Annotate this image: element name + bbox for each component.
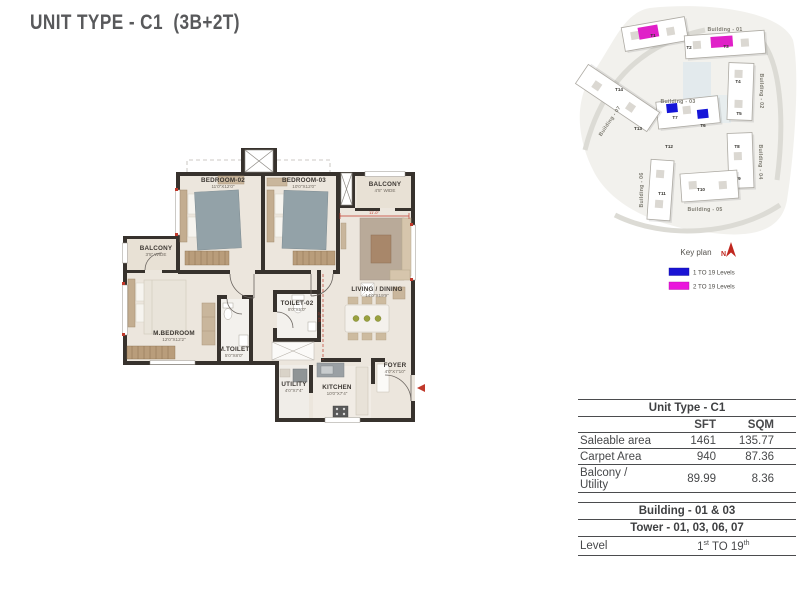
svg-text:12'0"X12'2": 12'0"X12'2": [162, 337, 186, 342]
building-row: Building - 01 & 03: [578, 503, 796, 519]
building-03-label: Building - 03: [660, 99, 695, 105]
label-balcony-left: BALCONY: [140, 245, 173, 252]
svg-text:10'0"X12'0": 10'0"X12'0": [292, 184, 316, 189]
stove-icon: [333, 406, 348, 417]
dim-living-width: 11'-0": [369, 210, 379, 215]
dining-set: [345, 297, 389, 340]
label-bedroom02: BEDROOM-02: [201, 177, 245, 184]
tower-t1: T1: [650, 33, 656, 38]
tower-t7: T7: [672, 115, 678, 120]
shaft-top: [245, 150, 273, 172]
tower-t4: T4: [735, 79, 741, 84]
tower-t2: T2: [686, 45, 692, 50]
table-row-balcony: Balcony / Utility 89.99 8.36: [578, 465, 796, 492]
building-05-label: Building - 05: [687, 207, 722, 213]
svg-text:4'0"X7'10": 4'0"X7'10": [385, 369, 406, 374]
tower-t14: T14: [615, 87, 623, 92]
label-utility: UTILITY: [281, 381, 307, 388]
level-value: 1st TO 19th: [651, 540, 796, 553]
page-title: UNIT TYPE - C1 (3B+2T): [30, 11, 240, 35]
svg-text:4'0"X7'4": 4'0"X7'4": [285, 388, 304, 393]
building-02-label: Building - 02: [758, 73, 764, 108]
table-row-saleable: Saleable area 1461 135.77: [578, 433, 796, 448]
label-toilet02: TOILET-02: [281, 300, 314, 307]
legend-swatch-blue: [669, 268, 689, 276]
label-balcony-top: BALCONY: [369, 181, 402, 188]
label-foyer: FOYER: [384, 362, 407, 369]
level-label: Level: [578, 540, 651, 553]
legend-label-magenta: 2 TO 19 Levels: [693, 284, 735, 291]
table-title: Unit Type - C1: [578, 400, 796, 416]
north-arrow-icon: [726, 242, 736, 257]
col-sqm: SQM: [716, 419, 796, 431]
label-master-bedroom: M.BEDROOM: [153, 330, 195, 337]
floor-plan: 11'-0" 12'-2" BEDROOM-02 11'0"X12'0" BED…: [90, 145, 450, 440]
tower-row: Tower - 01, 03, 06, 07: [578, 520, 796, 536]
key-plan-title: Key plan: [680, 248, 711, 257]
svg-text:8'0"X5'0": 8'0"X5'0": [288, 307, 307, 312]
label-living-dining: LIVING / DINING: [351, 286, 402, 293]
label-bedroom03: BEDROOM-03: [282, 177, 326, 184]
entrance-arrow-icon: [417, 384, 425, 392]
tower-t6: T6: [700, 123, 706, 128]
tower-t12: T12: [665, 144, 673, 149]
lobby-passage: [272, 342, 314, 360]
building-01-label: Building - 01: [707, 27, 742, 33]
legend-label-blue: 1 TO 19 Levels: [693, 270, 735, 277]
building-06-label: Building - 06: [639, 172, 645, 207]
tower-t10: T10: [697, 187, 705, 192]
tower-t5: T5: [736, 111, 742, 116]
table-header-row: SFT SQM: [578, 417, 796, 432]
tower-t11: T11: [658, 191, 666, 196]
legend: 1 TO 19 Levels 2 TO 19 Levels: [669, 268, 735, 291]
tower-t8: T8: [734, 144, 740, 149]
svg-text:11'0"X12'0": 11'0"X12'0": [211, 184, 234, 189]
svg-text:10'0"X7'4": 10'0"X7'4": [327, 391, 348, 396]
svg-text:4'5" WIDE: 4'5" WIDE: [375, 188, 396, 193]
col-sft: SFT: [658, 419, 716, 431]
label-master-toilet: M.TOILET: [219, 346, 250, 353]
key-plan: T1 T2 T3 Building - 01 T4 T5 Building - …: [555, 0, 800, 310]
table-row-carpet: Carpet Area 940 87.36: [578, 449, 796, 464]
svg-text:3'5" WIDE: 3'5" WIDE: [146, 252, 167, 257]
tower-t13: T13: [634, 126, 642, 131]
svg-text:5'0"X8'0": 5'0"X8'0": [225, 353, 244, 358]
legend-swatch-magenta: [669, 282, 689, 290]
tower-t3: T3: [723, 44, 729, 49]
info-table: Unit Type - C1 SFT SQM Saleable area 146…: [578, 399, 796, 556]
svg-text:14'0"X19'9": 14'0"X19'9": [365, 293, 389, 298]
shaft-right: [341, 173, 352, 205]
label-kitchen: KITCHEN: [322, 384, 352, 391]
north-label: N: [721, 251, 726, 258]
dim-living-height: 12'-2": [317, 311, 322, 322]
level-row: Level 1st TO 19th: [578, 537, 796, 555]
building-04-label: Building - 04: [757, 144, 763, 179]
